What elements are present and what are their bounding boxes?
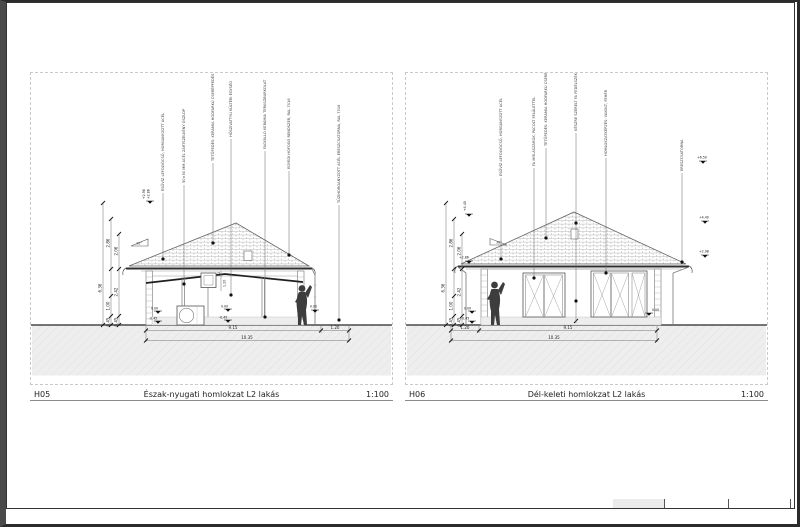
dim-value: 2.86: [105, 238, 110, 247]
level-value: +4.40: [463, 201, 467, 211]
level-value: 0.00: [310, 305, 317, 309]
gutter-end-left: [455, 266, 458, 273]
dim-value: 0.45: [113, 317, 118, 326]
dim-value: 6.36: [440, 283, 445, 292]
roof-slope-marker: 30°: [490, 239, 507, 246]
dim-value: 2.86: [448, 238, 453, 247]
level-value: +6.50: [697, 156, 707, 160]
window-dimension: 1.20: [223, 280, 227, 287]
slope-value: 30°: [496, 241, 502, 245]
drawing-title-bar-h06: H06 Dél-keleti homlokzat L2 lakás 1:100: [405, 386, 768, 401]
elevation-panel-h05: K2 1.20 30° 0.00 -0.45 0.00 -0.45 0.: [30, 72, 393, 385]
elevation-drawing-se: 30° 0.00 -0.45 +4.40 +2.86 +6.50 +4.40 +…: [406, 73, 767, 384]
level-value: 0.00: [221, 305, 228, 309]
callout-label: HOMLOKZATKÉPZÉS: VAKOLT, FEHÉR: [603, 89, 608, 156]
window-mark: K2: [217, 272, 221, 276]
callout-label: TŰZIHORGANYZOTT ACÉL ERESZCSATORNA, RAL …: [336, 104, 341, 204]
sheet-fold-marks: [613, 499, 791, 508]
level-value: +4.40: [699, 216, 709, 220]
callout-label: ERESZCSATORNA: [680, 139, 684, 171]
drawing-scale: 1:100: [704, 390, 764, 399]
dim-value: 9.15: [229, 325, 238, 330]
callout-label: FA NYÍLÁSZÁRÓK, PÁCOLT FELÜLETTEL: [531, 97, 536, 166]
callout-label: TETŐFEDÉS: KERÁMIA HÓDFARKÚ CSERÉPFEDÉS: [543, 73, 548, 147]
dim-value: 1.20: [331, 325, 340, 330]
callout-label: ESŐVÍZ LEFOLYÓCSŐ, HORGANYZOTT ACÉL: [498, 98, 503, 176]
level-value: -0.45: [219, 316, 227, 320]
callout-label: ESŐVÍZ LEFOLYÓCSŐ, HORGANYZOTT ACÉL: [160, 113, 165, 191]
callout-leaders: ESŐVÍZ LEFOLYÓCSŐ, HORGANYZOTT ACÉL 50×5…: [160, 73, 341, 322]
level-value: 0.00: [151, 307, 158, 311]
level-value: 0.00: [464, 307, 471, 311]
roof-slope-marker: 30°: [131, 239, 148, 246]
dim-value: 0.45: [448, 317, 453, 326]
drawing-code: H05: [34, 390, 94, 399]
dim-value: 6.36: [98, 283, 103, 292]
dim-value: 2.06: [456, 246, 461, 255]
dim-value: 10.35: [241, 335, 253, 340]
roof-vent: [571, 229, 578, 239]
gutter-end-right: [689, 266, 692, 273]
level-value: +2.98: [699, 250, 709, 254]
level-value: +2.86: [147, 189, 151, 199]
dim-value: 1.00: [448, 301, 453, 310]
drawing-title: Észak-nyugati homlokzat L2 lakás: [94, 390, 329, 399]
ground: [31, 325, 392, 376]
callout-label: FAGYÁLLÓ KERÁMIA TERASZBURKOLAT: [262, 79, 267, 149]
downspout-right: [312, 269, 317, 324]
vertical-dimension-chain: 6.36 2.86 1.00 0.45 2.06 2.42 0.45: [440, 201, 464, 327]
drawing-title: Dél-keleti homlokzat L2 lakás: [469, 390, 704, 399]
fold-cell: [613, 499, 664, 508]
drawing-scale: 1:100: [329, 390, 389, 399]
french-door-1: [523, 273, 565, 317]
dim-value: 10.35: [548, 335, 560, 340]
heat-pump-unit: [177, 306, 204, 325]
fold-cell: [664, 499, 728, 508]
ground: [406, 325, 767, 376]
level-value: 0.00: [652, 308, 659, 312]
elevation-panel-h06: 30° 0.00 -0.45 +4.40 +2.86 +6.50 +4.40 +…: [405, 72, 768, 385]
french-door-2: [591, 271, 647, 317]
drawing-title-bar-h05: H05 Észak-nyugati homlokzat L2 lakás 1:1…: [30, 386, 393, 401]
plinth: [481, 317, 661, 325]
slope-value: 30°: [136, 242, 142, 246]
dim-value: 2.06: [113, 246, 118, 255]
dim-value: 0.45: [105, 317, 110, 326]
callout-label: HŐSZIVATTYÚ KÜLTÉRI EGYSÉG: [228, 81, 233, 137]
drawing-code: H06: [409, 390, 469, 399]
callout-label: EGYEDI HÓFOGÓ RENDSZER, RAL 7016: [286, 98, 291, 169]
dim-value: 2.42: [456, 287, 461, 296]
level-value: -0.45: [149, 317, 157, 321]
dim-value: 1.00: [105, 301, 110, 310]
gutter-end-left: [123, 268, 126, 275]
dim-value: 9.15: [564, 325, 573, 330]
fold-cell: [728, 499, 791, 508]
roof-vent: [244, 251, 252, 261]
dim-value: 1.20: [461, 325, 470, 330]
callout-label: KÉSZRE SZERELT FA FEDÉLSZÉK: [573, 73, 578, 131]
hipped-roof: [455, 212, 692, 273]
callout-label: 50×50 MM ACÉL ZÁRTSZELVÉNY OSZLOP: [181, 108, 186, 183]
level-value: +2.98: [142, 189, 146, 199]
callout-label: TETŐFEDÉS: KERÁMIA HÓDFARKÚ CSERÉPFEDÉS: [210, 73, 215, 162]
vertical-dimension-chain: 6.36 2.86 1.00 0.45 2.06 2.42 0.45: [98, 201, 122, 327]
hipped-roof: [123, 223, 315, 275]
dim-value: 2.42: [113, 287, 118, 296]
elevation-drawing-nw: K2 1.20 30° 0.00 -0.45 0.00 -0.45 0.: [31, 73, 392, 384]
